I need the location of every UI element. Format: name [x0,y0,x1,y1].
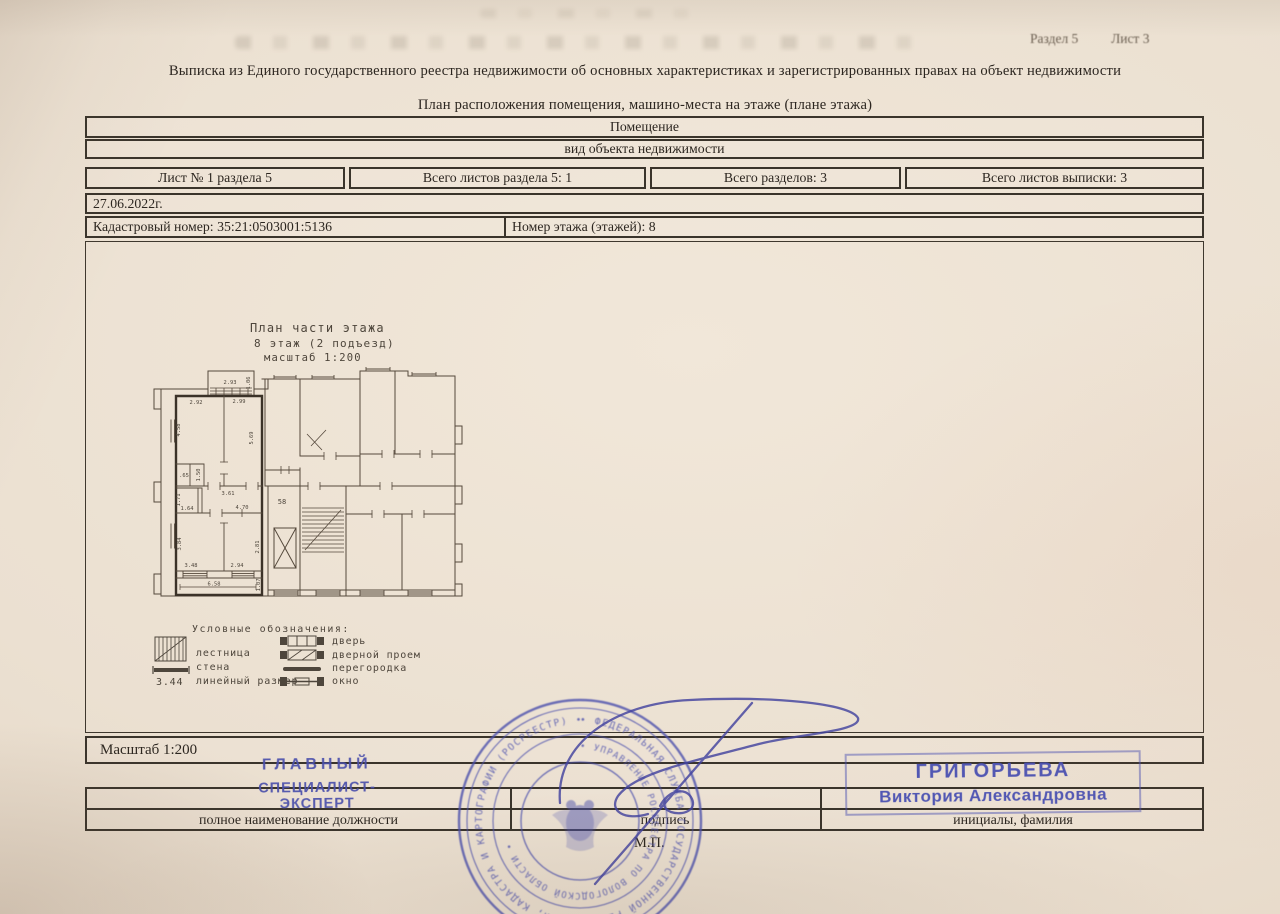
document-subtitle: План расположения помещения, машино-мест… [85,97,1205,114]
sheet-ref: Лист 3 [1111,31,1149,46]
sheet-info-cell: Всего разделов: 3 [650,167,901,189]
position-stamp-line1: ГЛАВНЫЙ [222,755,412,775]
stair-steps [302,508,344,552]
object-kind-value: Помещение [610,119,679,135]
dim-label: 1.07 [256,579,262,592]
corner-reference: Раздел 5 Лист 3 [1030,31,1149,47]
dim-label: 2.99 [233,399,246,405]
handwritten-signature [540,688,910,898]
bleedthrough-marks [480,9,700,18]
legend-item-window: окно [332,676,359,687]
position-stamp: ГЛАВНЫЙ СПЕЦИАЛИСТ-ЭКСПЕРТ [222,755,413,813]
stairs-icon [154,636,188,664]
section-ref: Раздел 5 [1030,31,1078,46]
position-stamp-line2: СПЕЦИАЛИСТ-ЭКСПЕРТ [222,779,412,813]
document-page: Раздел 5 Лист 3 Выписка из Единого госуд… [0,0,1280,914]
wall-icon [152,666,190,674]
document-title: Выписка из Единого государственного реес… [85,63,1205,80]
sheet-info-cell: Лист № 1 раздела 5 [85,167,345,189]
plan-legend: Условные обозначения: лестница стена 3.4… [152,624,442,694]
position-label: полное наименование должности [87,810,510,831]
object-kind-label-row: вид объекта недвижимости [85,139,1204,159]
plan-heading-line1: План части этажа [250,321,395,336]
legend-title: Условные обозначения: [192,624,350,635]
scale-value: Масштаб 1:200 [87,742,197,759]
bleedthrough-marks [235,36,925,49]
partition-icon [282,666,322,672]
legend-item-stairs: лестница [196,648,251,659]
dim-label: 2.81 [255,541,261,554]
door-icon [280,635,324,647]
door-swings [281,430,432,518]
windows [274,367,436,596]
sheet-info-text: Лист № 1 раздела 5 [158,170,272,186]
dim-label: 3.61 [222,491,235,497]
object-kind-label: вид объекта недвижимости [564,141,724,157]
legend-item-wall: стена [196,662,230,673]
sheet-info-text: Всего листов раздела 5: 1 [423,170,572,186]
plan-heading: План части этажа 8 этаж (2 подъезд) масш… [250,321,395,366]
apartment-interior-walls [171,396,262,578]
legend-sample-dim: 3.44 [156,677,183,688]
legend-item-door: дверь [332,636,366,647]
dim-label: 5.69 [249,432,255,445]
dim-label: 1.06 [246,377,252,390]
extract-date: 27.06.2022г. [87,196,163,212]
floor-number: Номер этажа (этажей): 8 [506,219,656,235]
dim-label: .65 [179,473,189,479]
legend-item-partition: перегородка [332,663,407,674]
dimension-labels: 2.93 1.06 2.92 2.99 4.58 5.69 .65 1.50 3… [176,377,286,592]
dim-label: 2.94 [231,563,244,569]
floor-cell: Номер этажа (этажей): 8 [504,218,1202,236]
dim-label: 1.71 [176,494,182,507]
window-icon [280,676,324,687]
dim-label: 4.58 [176,424,182,437]
dim-label: 3.48 [185,563,198,569]
dim-label: 1.64 [181,506,194,512]
dim-label: 2.92 [190,400,203,406]
plan-heading-line2: 8 этаж (2 подъезд) [250,336,395,351]
doorway-icon [280,649,324,661]
dim-label: 2.93 [224,380,237,386]
dim-label: 1.50 [196,469,202,482]
cadastral-cell: Кадастровый номер: 35:21:0503001:5136 [87,218,504,236]
dim-label: 3.84 [177,538,183,551]
cadastral-row: Кадастровый номер: 35:21:0503001:5136 Но… [85,216,1204,238]
sheet-info-text: Всего листов выписки: 3 [982,170,1127,186]
floor-plan-drawing: 2.93 1.06 2.92 2.99 4.58 5.69 .65 1.50 3… [150,366,480,622]
date-row: 27.06.2022г. [85,193,1204,214]
sheet-info-text: Всего разделов: 3 [724,170,827,186]
dim-label: 4.70 [236,505,249,511]
cadastral-number: Кадастровый номер: 35:21:0503001:5136 [87,219,332,235]
core-and-neighbors [265,371,455,595]
dim-label: 6.58 [208,582,221,588]
apartment-number-label: 58 [278,498,286,506]
object-kind-row: Помещение [85,116,1204,138]
sheet-info-cell: Всего листов выписки: 3 [905,167,1204,189]
sheet-info-cell: Всего листов раздела 5: 1 [349,167,646,189]
legend-item-doorway: дверной проем [332,650,421,661]
plan-heading-line3: масштаб 1:200 [250,351,395,366]
